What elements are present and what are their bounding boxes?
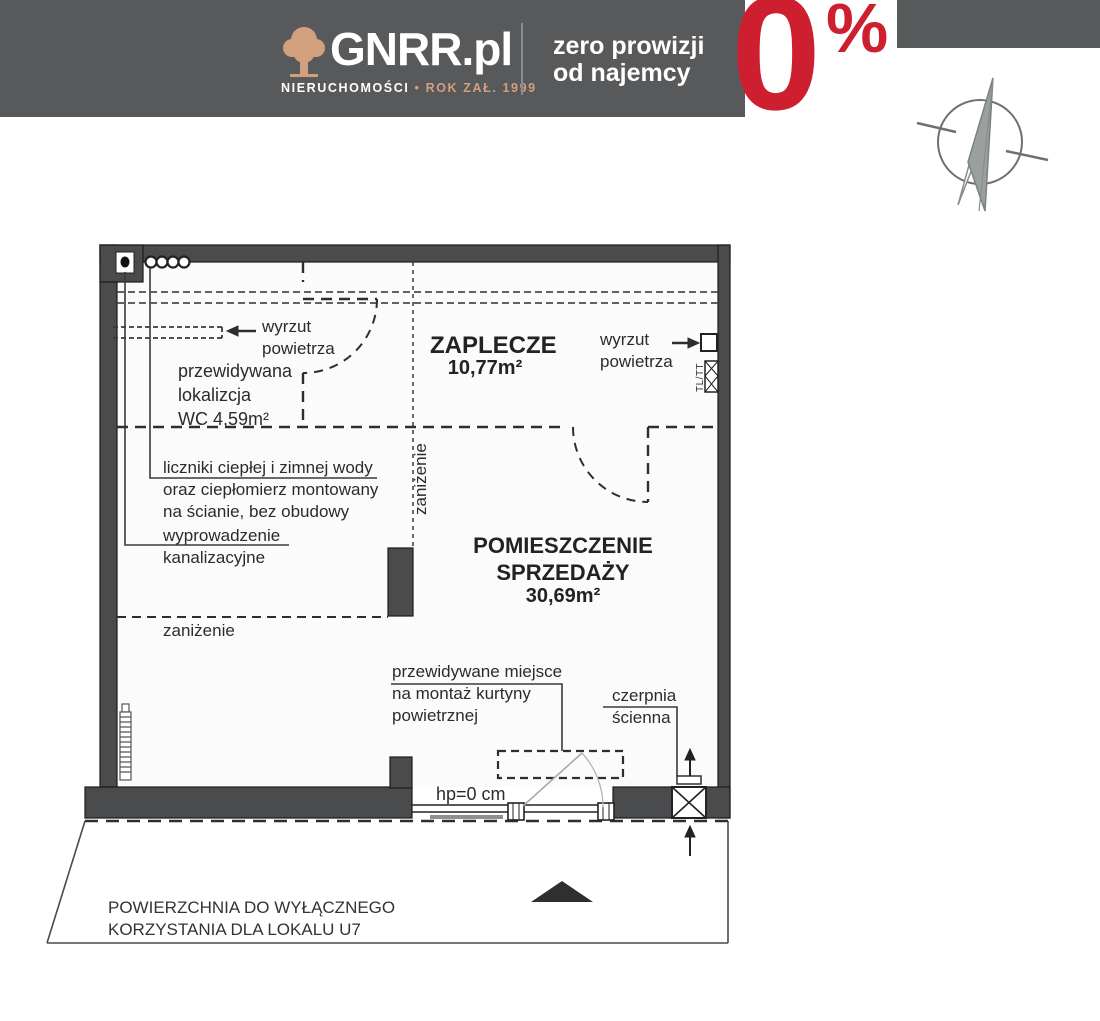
listing-floorplan-page: { "header": { "brand": "GNRR.pl", "tagli… [0,0,1100,1021]
wall-intake-line2: ścienna [612,707,676,729]
exclusive-area-line2: KORZYSTANIA DLA LOKALU U7 [108,919,395,941]
sales-name-line1: POMIESZCZENIE [463,532,663,559]
room-area-zaplecze: 10,77m² [430,357,540,380]
exhaust-right-line2: powietrza [600,351,673,373]
sewage-note-line2: kanalizacyjne [163,547,280,569]
wc-note-line1: przewidywana [178,359,292,383]
meters-note: liczniki ciepłej i zimnej wody oraz ciep… [163,457,378,523]
corner-vent-symbol [116,252,134,273]
sewage-note-line1: wyprowadzenie [163,525,280,547]
exhaust-left-line1: wyrzut [262,316,335,338]
shaft-symbol [705,361,718,392]
exhaust-label-left: wyrzut powietrza [262,316,335,360]
airflow-arrow-up-outside [685,826,695,856]
door-post-left [508,803,524,820]
wall-intake-symbol [672,776,706,818]
air-curtain-line2: na montaż kurtyny [392,683,562,705]
wc-note-line3: WC 4,59m² [178,407,292,431]
exhaust-outlet-box [701,334,717,351]
room-label-zaplecze: ZAPLECZE [430,332,540,360]
meters-note-line3: na ścianie, bez obudowy [163,501,378,523]
entrance-marker [531,881,593,902]
exhaust-right-line1: wyrzut [600,329,673,351]
wall-intake-line1: czerpnia [612,685,676,707]
air-curtain-note: przewidywane miejsce na montaż kurtyny p… [392,661,562,727]
wall-right [718,245,730,818]
exhaust-left-line2: powietrza [262,338,335,360]
exhaust-label-right: wyrzut powietrza [600,329,673,373]
door-post-right [598,803,614,820]
entrance-pillar [390,757,412,788]
shaft-label: TL/TT [695,360,706,392]
exclusive-area-note: POWIERZCHNIA DO WYŁĄCZNEGO KORZYSTANIA D… [108,897,395,941]
meters-note-line1: liczniki ciepłej i zimnej wody [163,457,378,479]
air-curtain-line3: powietrznej [392,705,562,727]
wall-top [100,245,730,262]
air-curtain-line1: przewidywane miejsce [392,661,562,683]
wall-bottom-left [85,787,412,818]
compass-icon [917,78,1048,211]
room-label-sales: POMIESZCZENIE SPRZEDAŻY [463,532,663,586]
zanizenie-label-vertical: zaniżenie [410,443,430,515]
room-area-sales: 30,69m² [463,585,663,608]
wc-location-note: przewidywana lokalizcja WC 4,59m² [178,359,292,431]
wall-intake-note: czerpnia ścienna [612,685,676,728]
zanizenie-label-horizontal: zaniżenie [163,620,235,642]
sewage-note: wyprowadzenie kanalizacyjne [163,525,280,569]
sales-name-line2: SPRZEDAŻY [463,559,663,586]
meters-note-line2: oraz ciepłomierz montowany [163,479,378,501]
threshold-height-label: hp=0 cm [436,783,506,805]
radiator-icon [120,704,131,780]
exclusive-area-line1: POWIERZCHNIA DO WYŁĄCZNEGO [108,897,395,919]
interior-pillar [388,548,413,616]
wc-note-line2: lokalizcja [178,383,292,407]
